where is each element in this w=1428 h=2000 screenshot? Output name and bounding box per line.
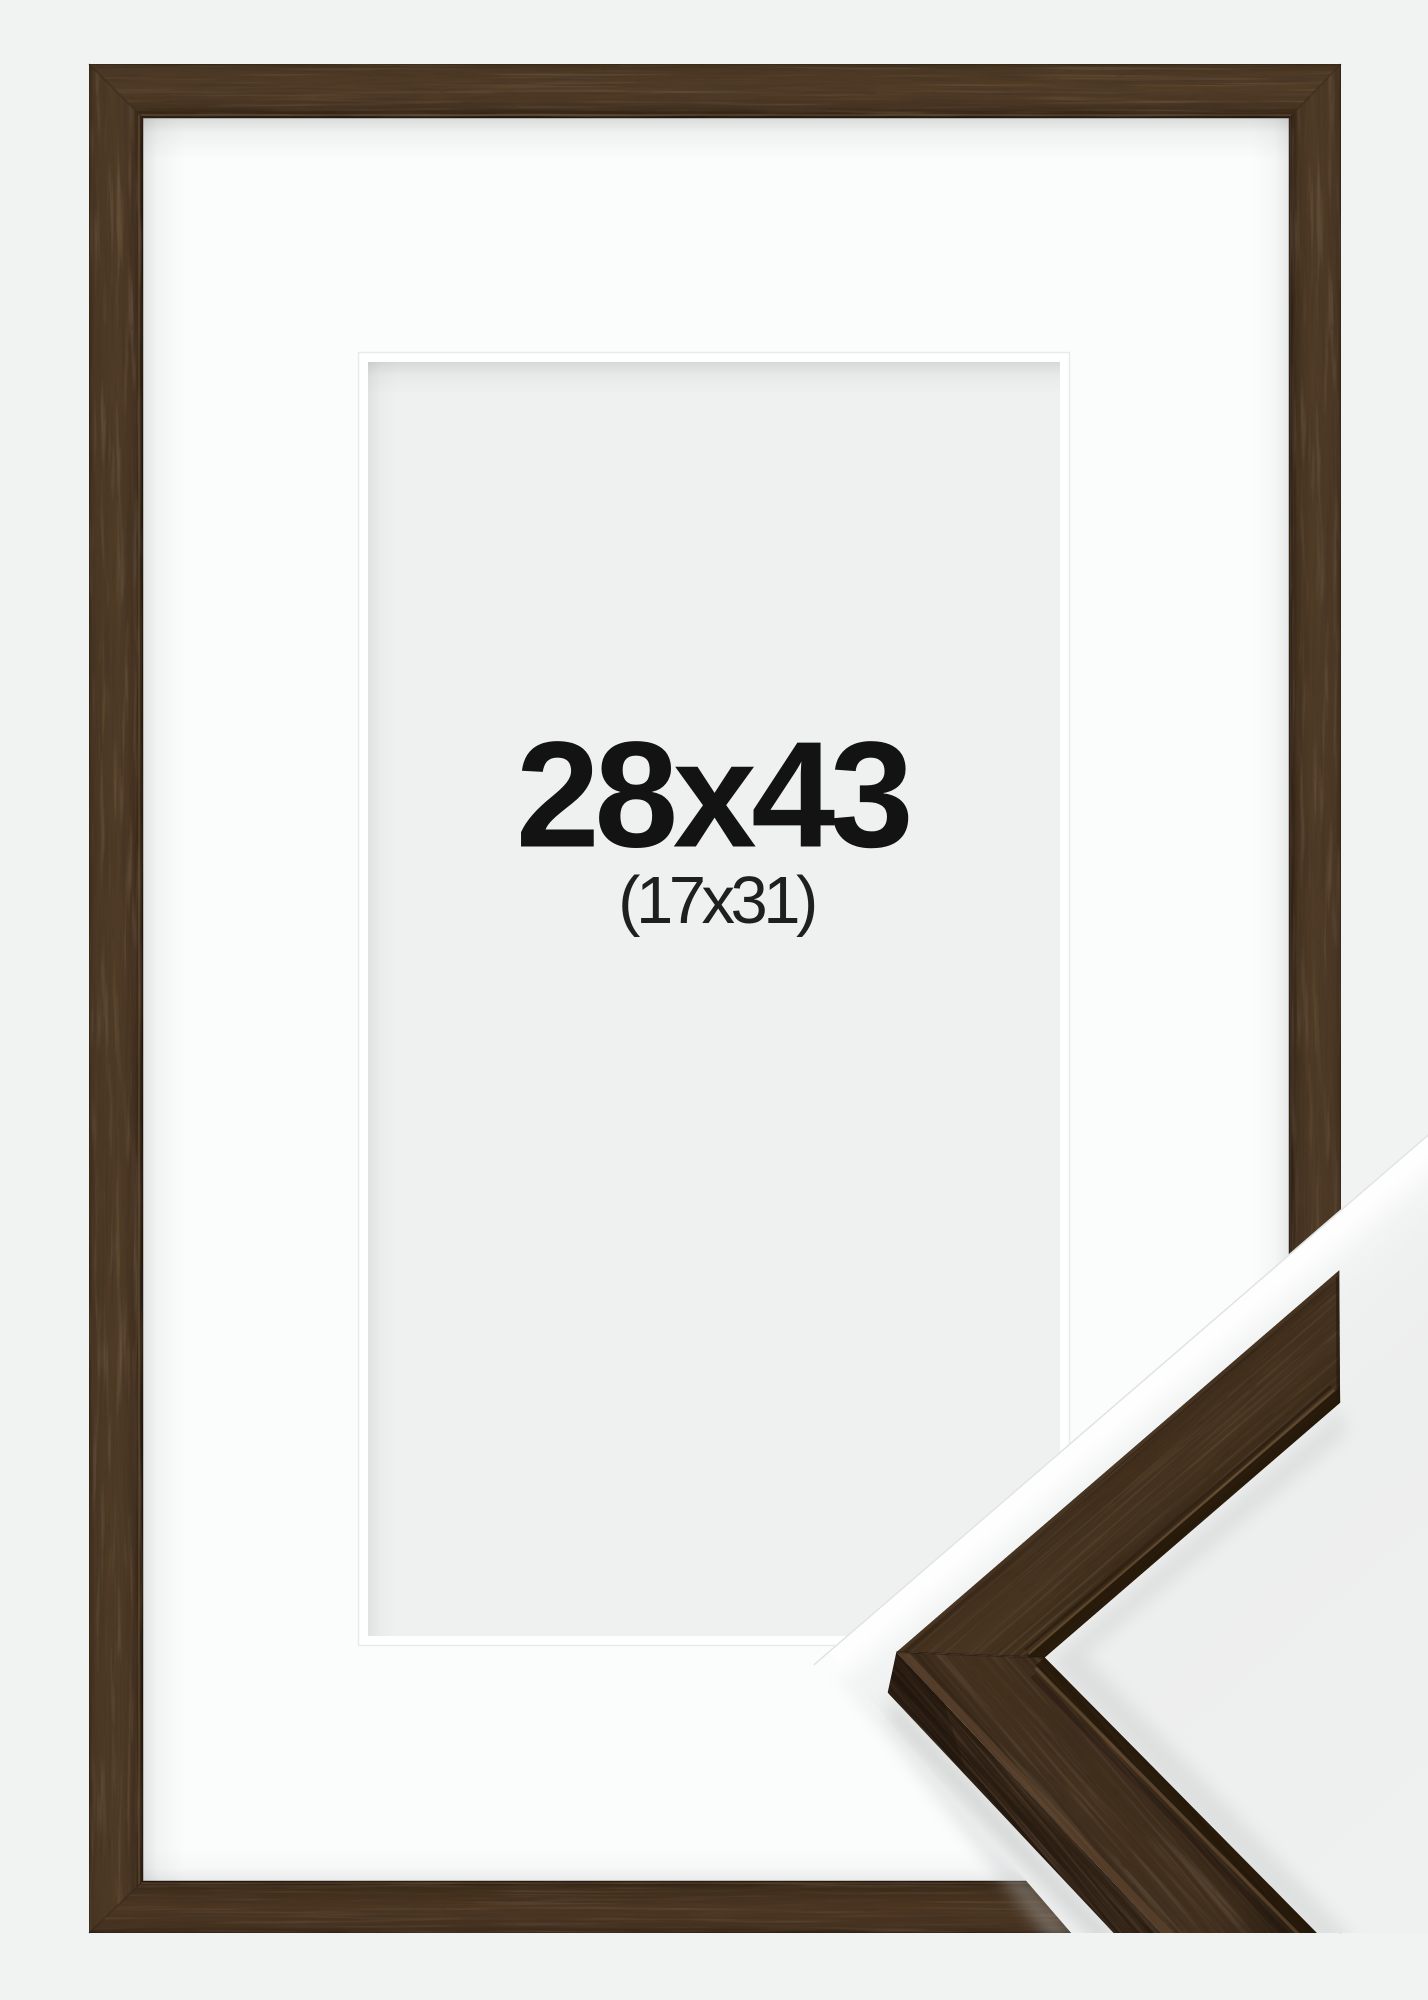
svg-text:(17x31): (17x31) bbox=[618, 863, 815, 938]
svg-text:28x43: 28x43 bbox=[516, 710, 909, 879]
